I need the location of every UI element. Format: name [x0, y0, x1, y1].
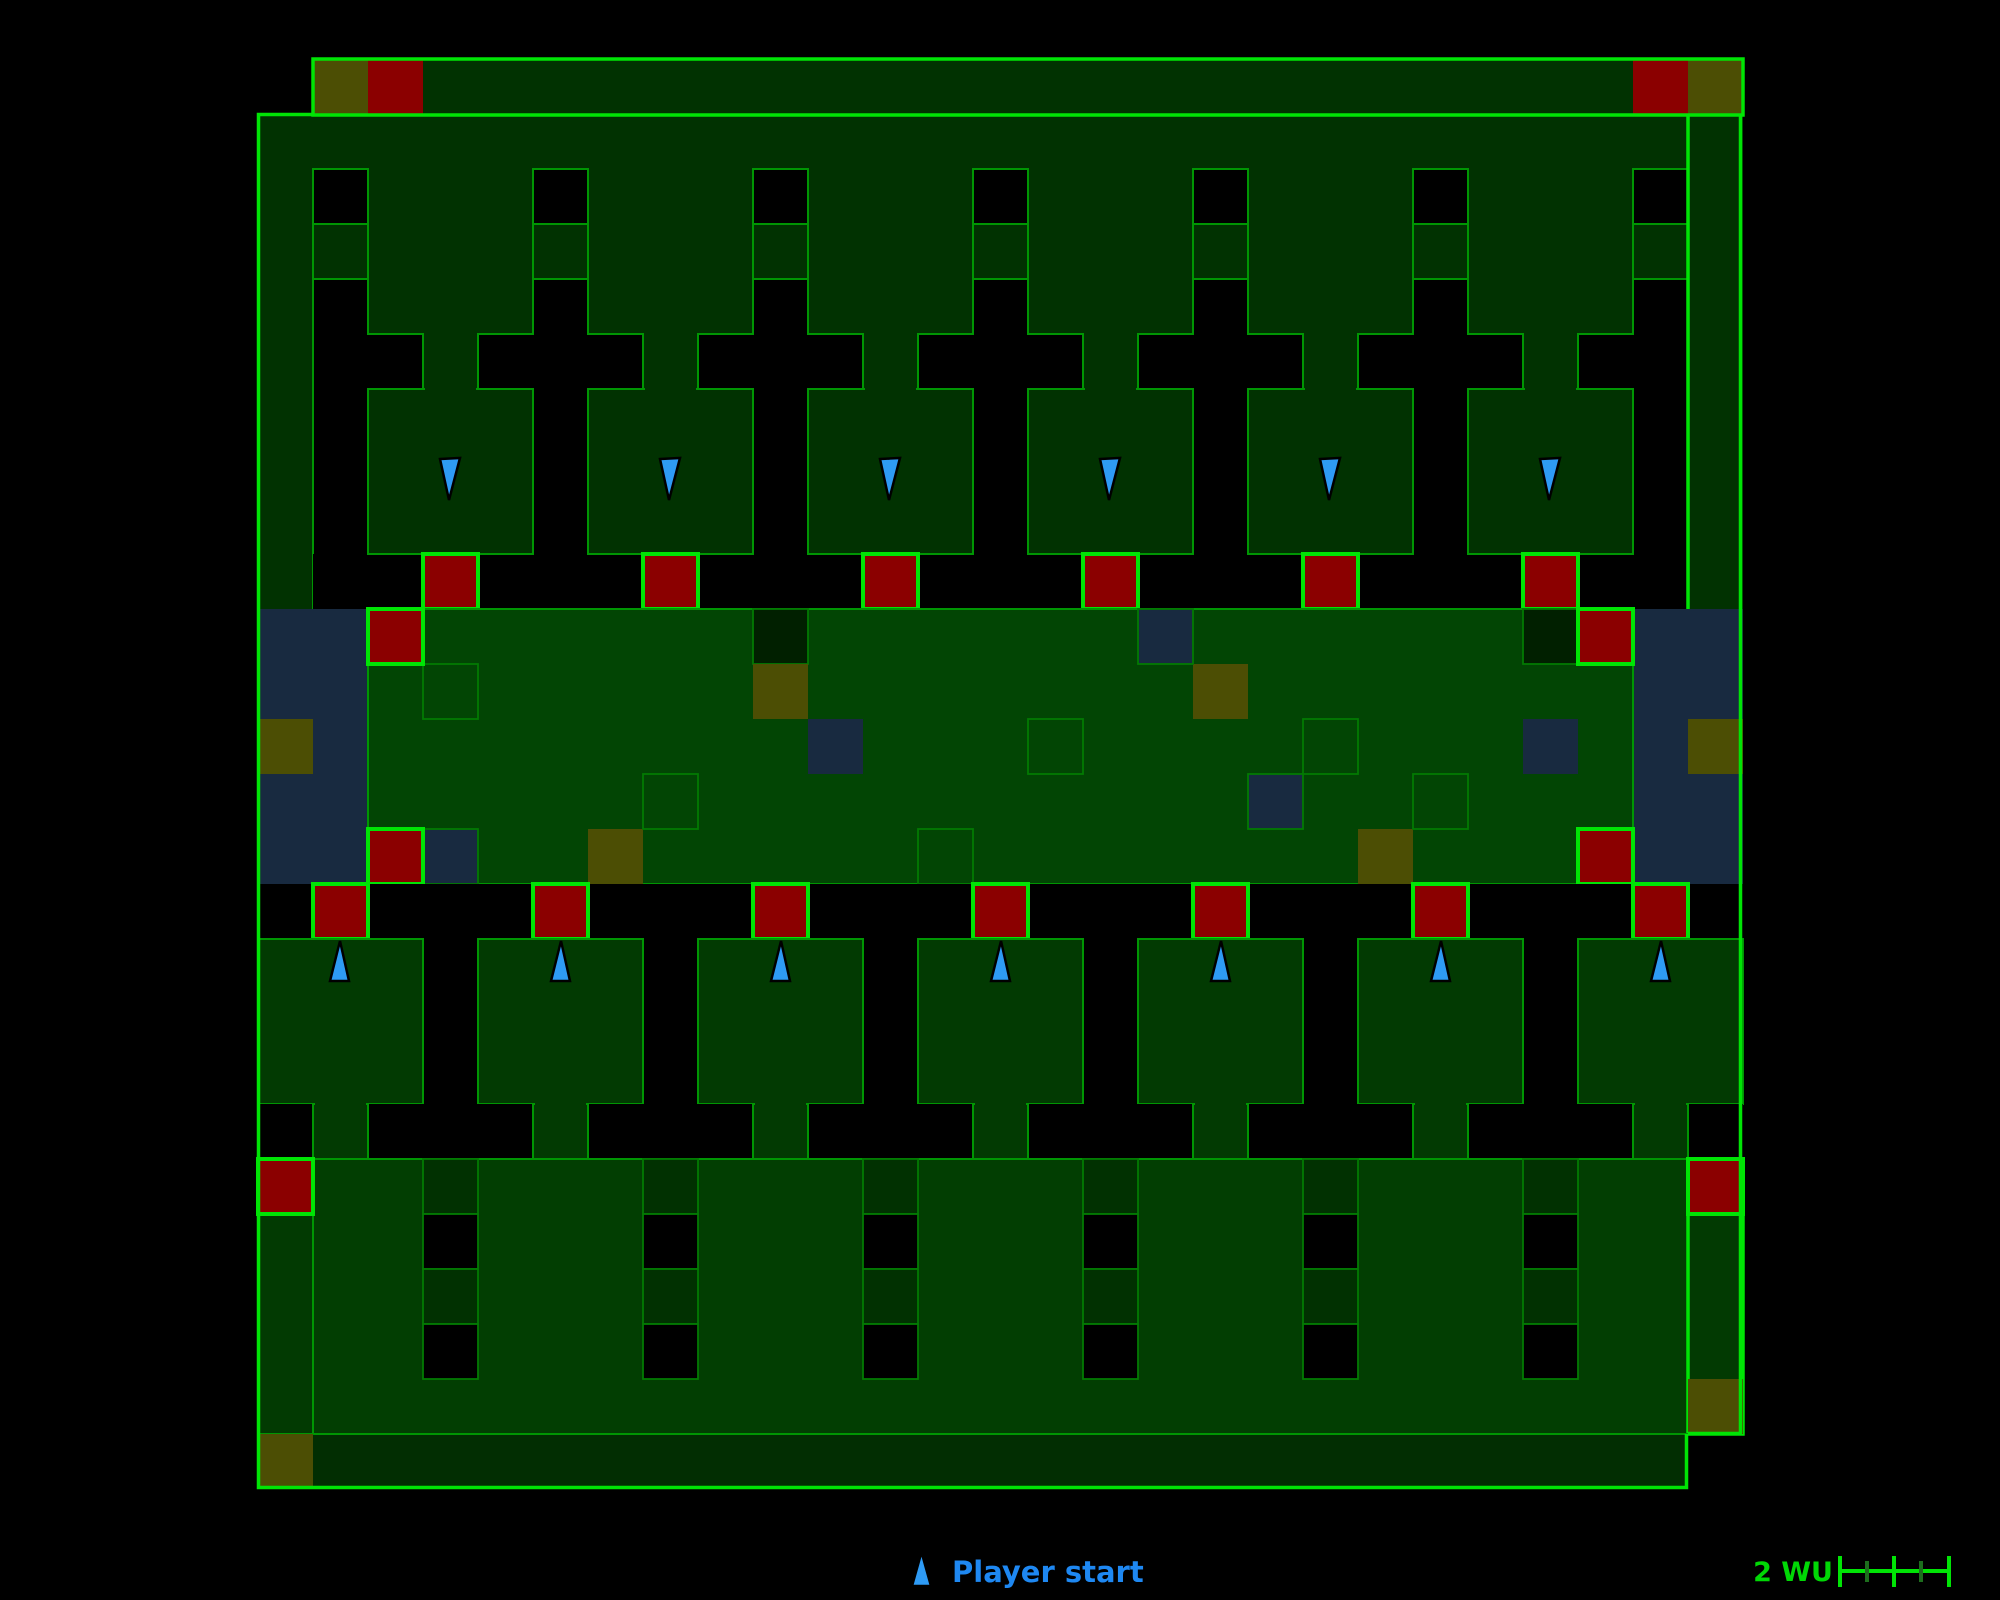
- scale-label: 2 WU: [1753, 1557, 1833, 1588]
- top-bar: [313, 59, 1743, 115]
- window-cell: [313, 224, 368, 279]
- pit-square: [753, 169, 808, 224]
- red-door: [1633, 884, 1688, 939]
- navy-square: [1248, 774, 1303, 829]
- cell-stack: [423, 1159, 478, 1379]
- red-door: [1688, 1159, 1743, 1214]
- olive-square: [1688, 1379, 1743, 1434]
- red-door: [423, 554, 478, 609]
- level-map-canvas: Player start 2 WU: [0, 0, 2000, 1600]
- lower-area: [313, 1159, 1688, 1434]
- room-stem: [753, 1104, 808, 1159]
- room-stem: [1633, 1104, 1688, 1159]
- window-cell: [1633, 224, 1688, 279]
- navy-square: [808, 719, 863, 774]
- navy-square: [423, 829, 478, 884]
- olive-square: [1193, 664, 1248, 719]
- red-door: [313, 884, 368, 939]
- window-cell: [533, 224, 588, 279]
- bottom-bar: [313, 1434, 1688, 1489]
- room-stem: [313, 1104, 368, 1159]
- cell-stack: [1523, 1159, 1578, 1379]
- red-door: [1413, 884, 1468, 939]
- red-door: [753, 884, 808, 939]
- red-door: [533, 884, 588, 939]
- window-cell: [1413, 224, 1468, 279]
- pit-square: [1633, 169, 1688, 224]
- mid-section: [258, 609, 1743, 884]
- legend-label: Player start: [952, 1555, 1144, 1589]
- upper-section: [257, 114, 1743, 609]
- red-square: [368, 59, 423, 114]
- window-cell: [973, 224, 1028, 279]
- olive-square: [258, 1434, 313, 1489]
- navy-square: [1523, 719, 1578, 774]
- red-door: [863, 554, 918, 609]
- level-map: [257, 59, 1743, 1489]
- bottom-bar-body: [313, 1434, 1688, 1489]
- window-cell: [1193, 224, 1248, 279]
- legend: Player start: [912, 1552, 1144, 1589]
- cell-stack: [643, 1159, 698, 1379]
- pit-square: [1413, 169, 1468, 224]
- red-door: [643, 554, 698, 609]
- room-stem: [1193, 1104, 1248, 1159]
- red-door: [1303, 554, 1358, 609]
- room-stem: [973, 1104, 1028, 1159]
- red-door: [1578, 829, 1633, 884]
- navy-square: [1138, 609, 1193, 664]
- red-door: [368, 609, 423, 664]
- olive-square: [588, 829, 643, 884]
- red-door: [368, 829, 423, 884]
- olive-square: [753, 664, 808, 719]
- lower-section: [258, 939, 1743, 1489]
- red-door: [258, 1159, 313, 1214]
- room-stem: [1413, 1104, 1468, 1159]
- cell-stack: [863, 1159, 918, 1379]
- cell-stack: [1083, 1159, 1138, 1379]
- red-door: [973, 884, 1028, 939]
- corridor: [258, 884, 1743, 939]
- player-start-arrow-icon: [912, 1552, 931, 1586]
- top-bar-body: [313, 59, 1743, 115]
- upper-black-strip: [313, 554, 1688, 609]
- red-door: [1083, 554, 1138, 609]
- olive-square: [1358, 829, 1413, 884]
- dark-cell: [1523, 609, 1578, 664]
- olive-square: [313, 59, 368, 114]
- pit-square: [973, 169, 1028, 224]
- pit-square: [1193, 169, 1248, 224]
- olive-square: [1688, 59, 1743, 114]
- left-edge-column: [258, 1214, 313, 1434]
- pit-square: [313, 169, 368, 224]
- red-door: [1578, 609, 1633, 664]
- window-cell: [753, 224, 808, 279]
- cell-stack: [1303, 1159, 1358, 1379]
- red-door: [1523, 554, 1578, 609]
- red-square: [1633, 59, 1688, 114]
- pit-square: [533, 169, 588, 224]
- olive-square: [1688, 719, 1743, 774]
- dark-cell: [753, 609, 808, 664]
- scale-bar: 2 WU: [1753, 1556, 1951, 1588]
- room-stem: [533, 1104, 588, 1159]
- red-door: [1193, 884, 1248, 939]
- band-area: [368, 609, 1633, 884]
- olive-square: [258, 719, 313, 774]
